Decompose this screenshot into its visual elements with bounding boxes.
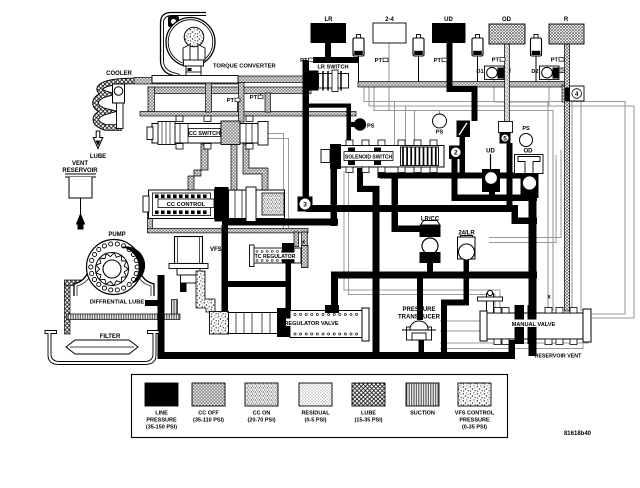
svg-text:PT: PT [227, 98, 235, 104]
svg-text:VFS CONTROL: VFS CONTROL [455, 411, 495, 417]
svg-text:(35-110 PSI): (35-110 PSI) [193, 418, 224, 424]
svg-text:LR: LR [325, 17, 334, 23]
svg-text:RESERVOIR VENT: RESERVOIR VENT [535, 354, 582, 360]
svg-text:MANUAL VALVE: MANUAL VALVE [512, 322, 556, 328]
svg-text:PRESSURE: PRESSURE [402, 307, 435, 313]
svg-text:(35-150 PSI): (35-150 PSI) [146, 425, 177, 431]
svg-text:PT: PT [551, 58, 559, 64]
svg-text:LUBE: LUBE [361, 411, 376, 417]
svg-text:OD: OD [524, 149, 534, 155]
svg-text:81618b40: 81618b40 [564, 431, 592, 437]
svg-text:LUBE: LUBE [90, 154, 106, 160]
svg-text:5: 5 [503, 135, 507, 142]
svg-text:PS: PS [522, 126, 530, 132]
svg-text:CC ON: CC ON [253, 411, 271, 417]
svg-text:TORQUE CONVERTER: TORQUE CONVERTER [213, 64, 277, 70]
svg-text:PS: PS [436, 130, 444, 136]
svg-text:PRESSURE: PRESSURE [146, 418, 177, 424]
svg-text:PT: PT [492, 58, 500, 64]
svg-text:LR SWITCH: LR SWITCH [317, 65, 348, 71]
svg-text:RESERVOIR: RESERVOIR [62, 168, 98, 174]
svg-text:LINE: LINE [155, 411, 168, 417]
svg-text:PT: PT [300, 58, 308, 64]
svg-text:TRANSDUCER: TRANSDUCER [398, 315, 441, 321]
svg-text:VFS: VFS [210, 247, 222, 253]
svg-text:DIFFRENTIAL LUBE: DIFFRENTIAL LUBE [90, 300, 144, 306]
svg-text:VENT: VENT [72, 161, 88, 167]
svg-text:CC SWITCH: CC SWITCH [189, 131, 220, 137]
svg-text:CC CONTROL: CC CONTROL [167, 202, 206, 208]
svg-text:(15-35 PSI): (15-35 PSI) [354, 418, 382, 424]
svg-text:PRESSURE: PRESSURE [459, 418, 490, 424]
svg-text:R: R [564, 17, 569, 23]
svg-text:(0-35 PSI): (0-35 PSI) [462, 425, 487, 431]
svg-text:PT: PT [434, 58, 442, 64]
svg-text:UD: UD [486, 149, 495, 155]
svg-text:SOLENOID SWITCH: SOLENOID SWITCH [345, 155, 393, 161]
svg-text:PS: PS [367, 124, 375, 130]
svg-text:FILTER: FILTER [100, 334, 121, 340]
svg-text:COOLER: COOLER [106, 71, 132, 77]
svg-text:REGULATOR VALVE: REGULATOR VALVE [284, 321, 339, 327]
svg-text:D1: D1 [476, 69, 483, 75]
svg-text:3: 3 [303, 201, 307, 208]
svg-text:RESIDUAL: RESIDUAL [301, 411, 330, 417]
svg-text:PT: PT [250, 95, 258, 101]
svg-text:(0-5 PSI): (0-5 PSI) [304, 418, 326, 424]
svg-text:2-4: 2-4 [385, 17, 394, 23]
svg-text:D2: D2 [531, 69, 538, 75]
svg-text:SUCTION: SUCTION [410, 411, 435, 417]
svg-text:2: 2 [454, 150, 458, 157]
svg-text:CC OFF: CC OFF [198, 411, 219, 417]
svg-text:(20-70 PSI): (20-70 PSI) [247, 418, 275, 424]
svg-text:UD: UD [444, 17, 453, 23]
svg-text:PT: PT [375, 58, 383, 64]
svg-text:OD: OD [502, 17, 512, 23]
svg-text:TC REGULATOR: TC REGULATOR [255, 254, 296, 260]
svg-text:PUMP: PUMP [108, 232, 125, 238]
